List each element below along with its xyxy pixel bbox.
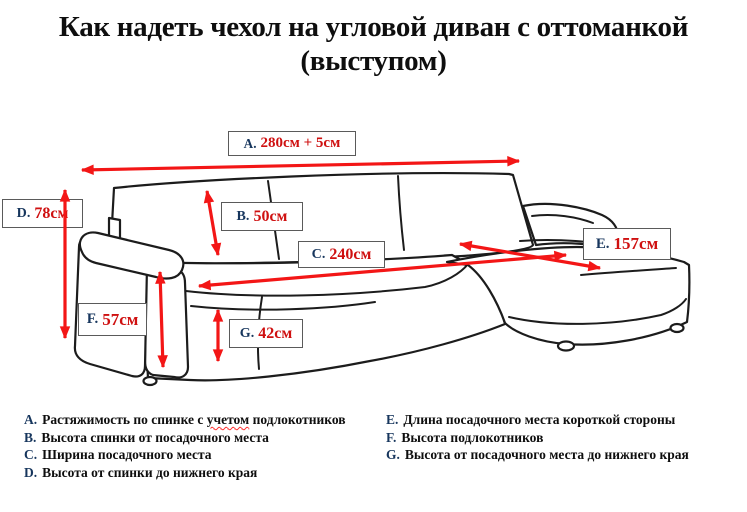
sofa-drawing [75,173,690,385]
legend-text: Длина посадочного места короткой стороны [403,412,675,427]
measurement-letter: D. [17,205,31,222]
legend-text: Ширина посадочного места [42,447,211,462]
measurement-box-c: C.240см [298,241,385,268]
legend-item-a: A.Растяжимость по спинке с учетом подлок… [24,411,374,429]
seat [147,255,505,380]
measurement-box-g: G.42см [229,319,303,348]
legend-column-right: E.Длина посадочного места короткой сторо… [386,411,741,464]
measurement-box-d: D.78см [2,199,83,228]
legend-text: Растяжимость по спинке с [42,412,207,427]
legend-text: Высота спинки от посадочного места [41,430,268,445]
legend-text: подлокотников [249,412,345,427]
sofa-foot [671,324,684,332]
measurement-letter: B. [237,208,250,225]
measurement-box-b: B.50см [221,202,303,231]
legend-letter: C. [24,447,37,462]
sofa-foot [558,342,574,351]
legend-item-c: C.Ширина посадочного места [24,446,374,464]
measurement-letter: F. [87,311,99,328]
sofa-cover-infographic: Как надеть чехол на угловой диван с отто… [0,0,747,512]
measurement-box-f: F.57см [78,303,147,336]
legend-letter: E. [386,412,398,427]
measurement-letter: G. [240,325,254,342]
measurement-letter: E. [596,236,610,253]
measurement-box-a: A.280см + 5см [228,131,356,156]
legend-item-f: F.Высота подлокотников [386,429,741,447]
measurement-value: 280см + 5см [261,135,341,152]
legend-text: Высота от спинки до нижнего края [42,465,257,480]
misspelled-word-underline: учетом [207,412,250,427]
measurement-value: 157см [614,234,659,254]
legend-item-e: E.Длина посадочного места короткой сторо… [386,411,741,429]
legend-column-left: A.Растяжимость по спинке с учетом подлок… [24,411,374,481]
legend-text: Высота подлокотников [401,430,543,445]
measurement-value: 57см [102,310,138,330]
measurement-value: 42см [258,325,292,343]
measurement-value: 240см [329,246,371,264]
legend-item-d: D.Высота от спинки до нижнего края [24,464,374,482]
measurement-letter: C. [312,246,326,263]
legend-item-b: B.Высота спинки от посадочного места [24,429,374,447]
legend-letter: G. [386,447,400,462]
measurement-box-e: E.157см [583,228,671,260]
legend-letter: A. [24,412,37,427]
sofa-foot [144,377,157,385]
measurement-value: 78см [34,205,68,223]
measurement-value: 50см [253,208,287,226]
legend-letter: F. [386,430,396,445]
legend-item-g: G.Высота от посадочного места до нижнего… [386,446,741,464]
left-armrest-inner [145,268,188,378]
measurement-letter: A. [244,136,257,152]
legend-text: Высота от посадочного места до нижнего к… [405,447,689,462]
legend-letter: D. [24,465,37,480]
legend-letter: B. [24,430,36,445]
